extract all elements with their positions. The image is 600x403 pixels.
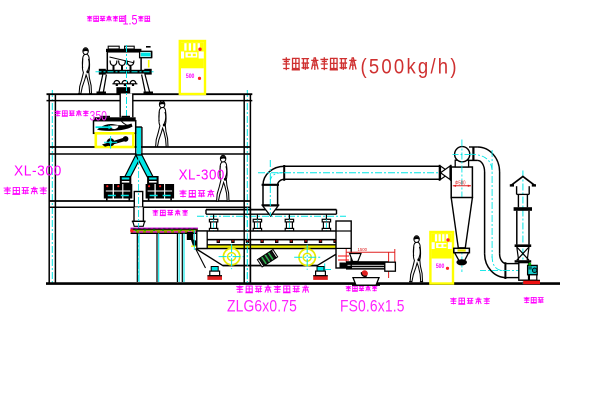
svg-text:XL-300: XL-300 <box>179 166 225 183</box>
svg-text:(500kg/h): (500kg/h) <box>361 55 459 79</box>
svg-text:500: 500 <box>436 263 445 270</box>
svg-text:1.5: 1.5 <box>123 12 138 27</box>
svg-text:ZLG6x0.75: ZLG6x0.75 <box>227 297 297 315</box>
svg-text:Φ500: Φ500 <box>455 180 466 185</box>
svg-text:1500: 1500 <box>358 247 368 252</box>
svg-text:FS0.6x1.5: FS0.6x1.5 <box>340 297 405 315</box>
svg-text:XL-300: XL-300 <box>14 163 62 180</box>
svg-text:500: 500 <box>186 73 195 80</box>
svg-text:350: 350 <box>90 108 108 124</box>
